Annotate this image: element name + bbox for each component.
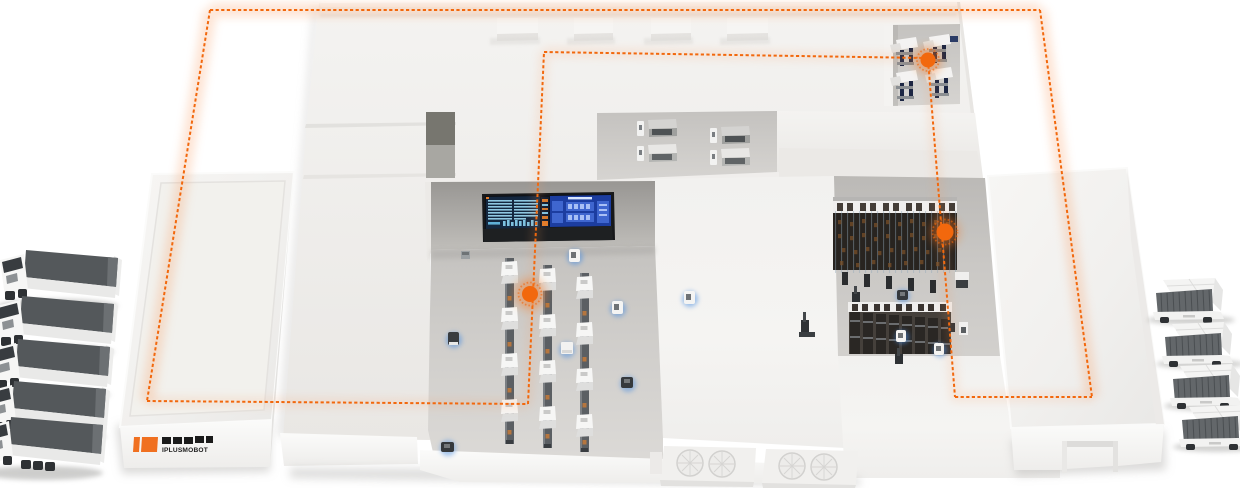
- svg-text:IPLUSMOBOT: IPLUSMOBOT: [162, 447, 208, 454]
